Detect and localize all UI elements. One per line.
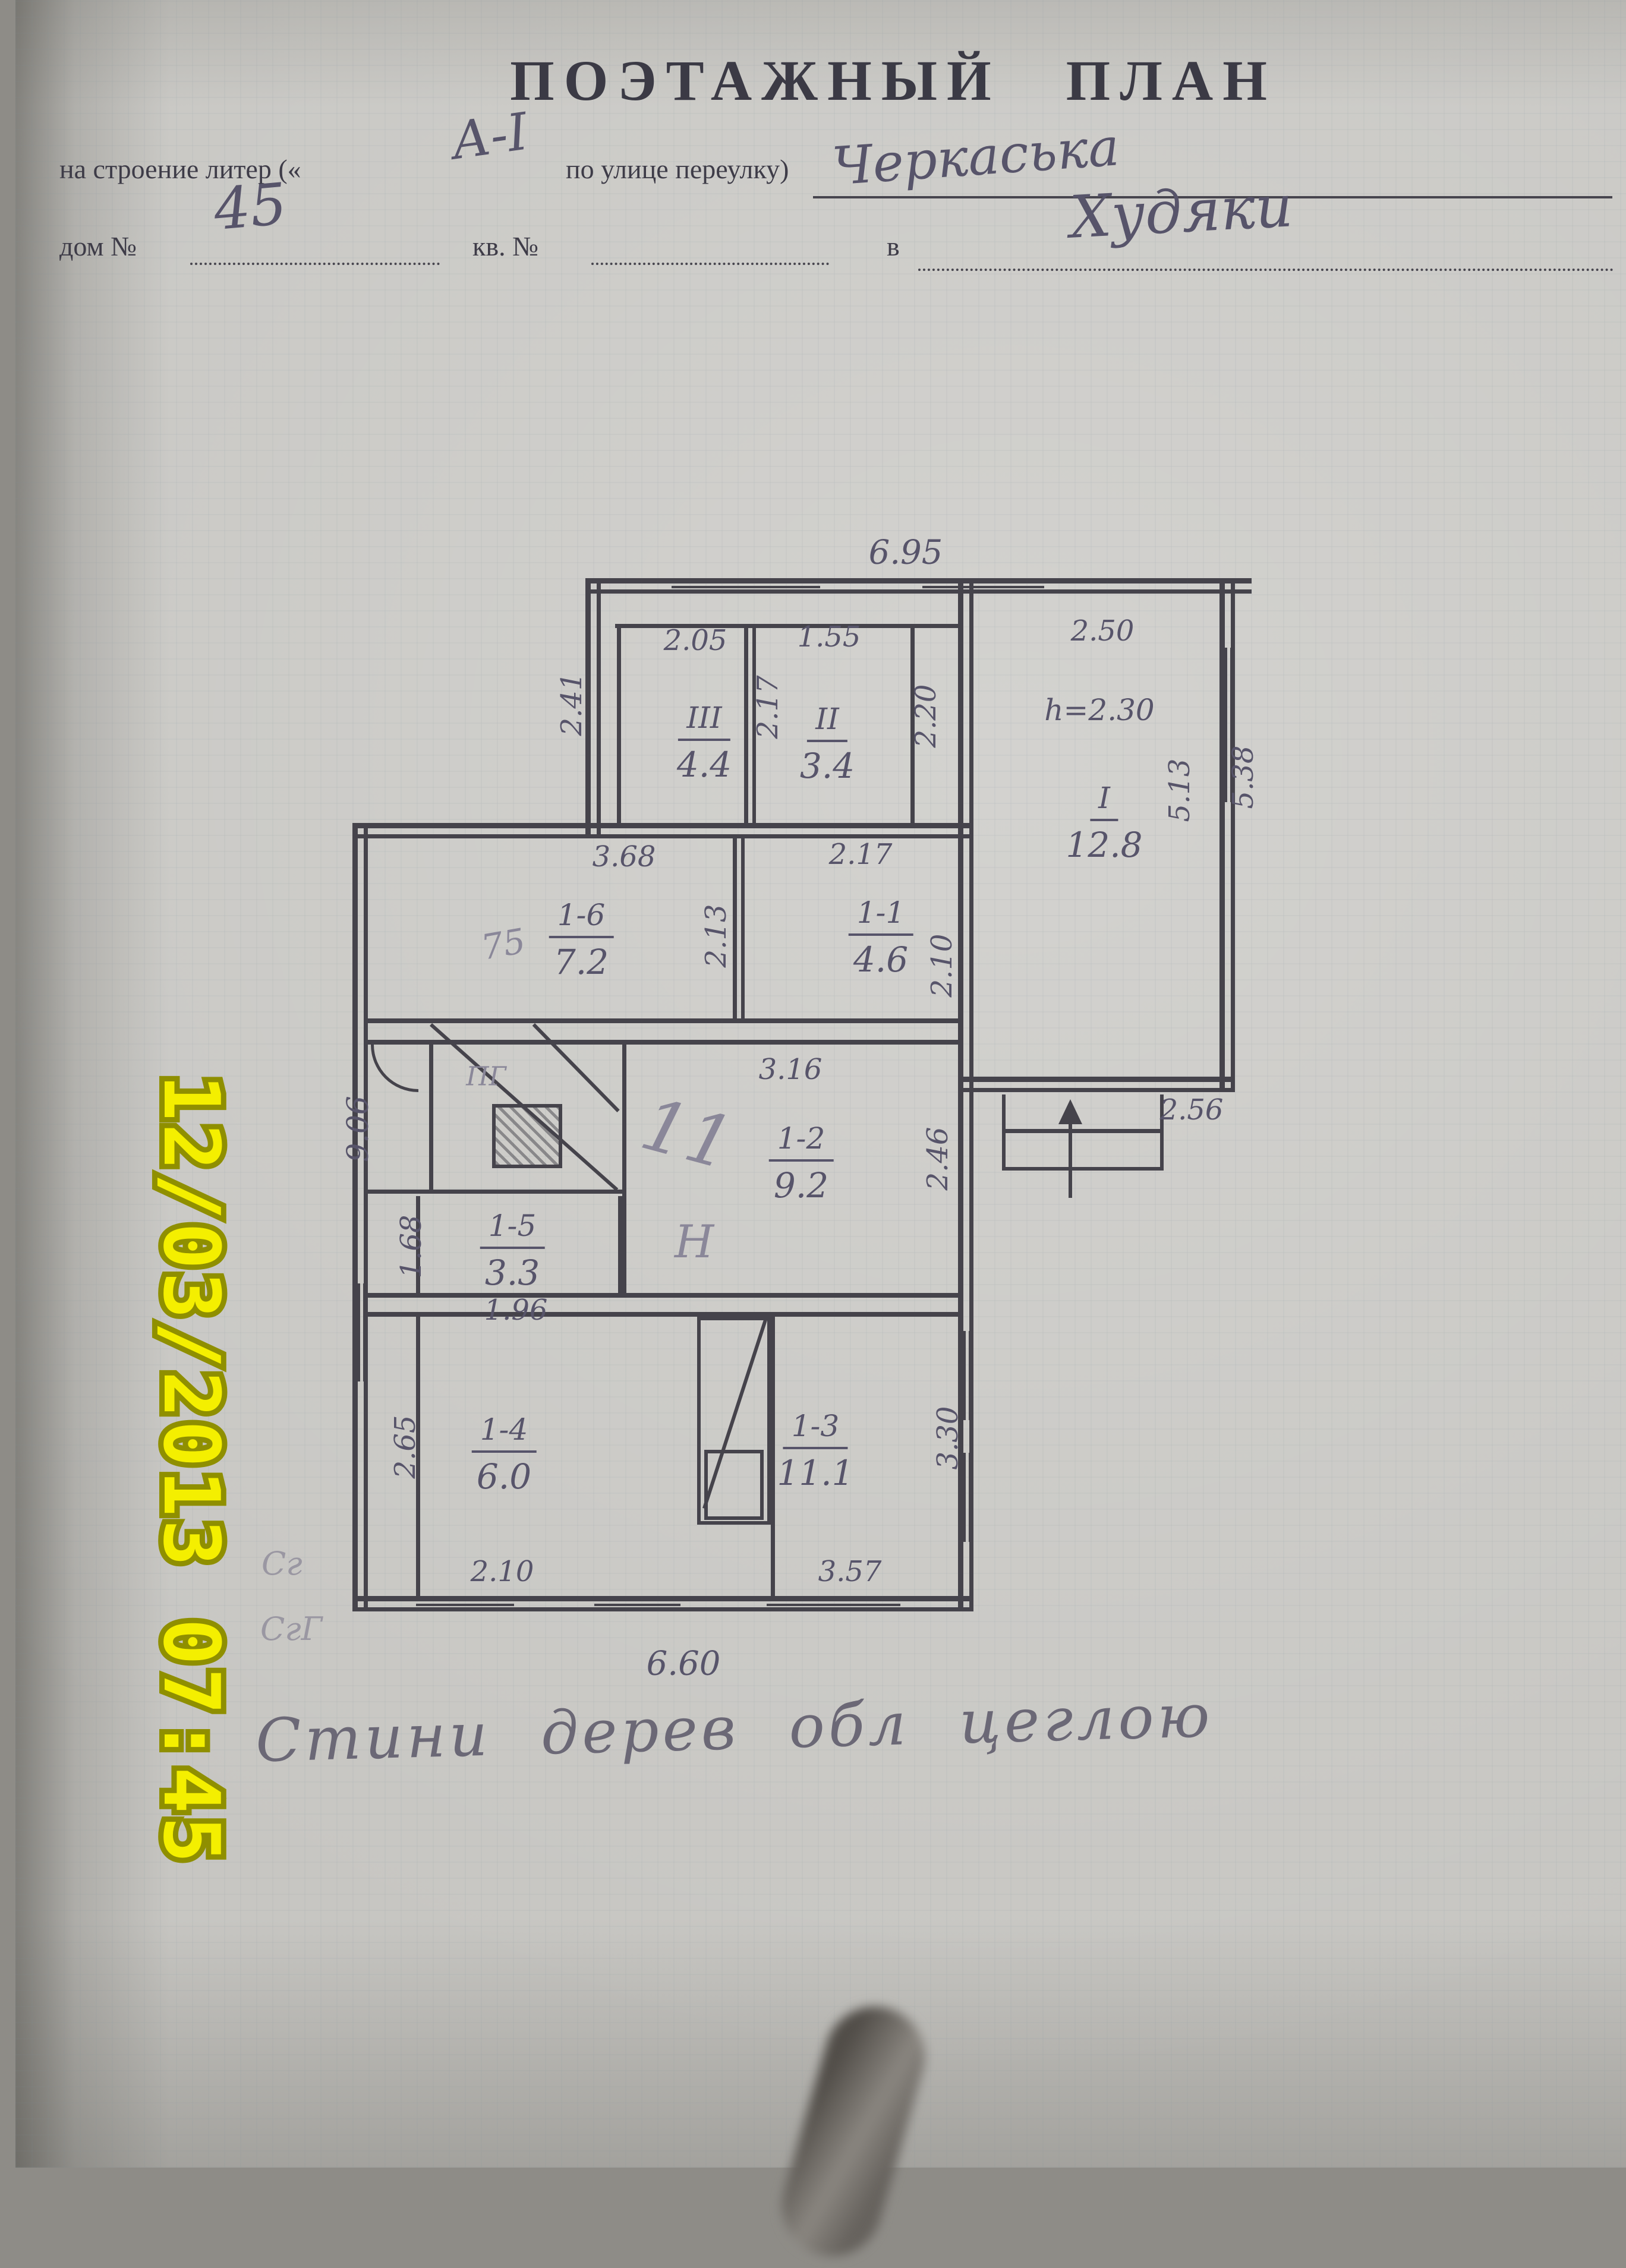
room-number: 1-6 [549, 898, 614, 938]
room-label-1-4: 1-4 6.0 [472, 1412, 537, 1497]
wall-r13-left [771, 1317, 775, 1596]
dim-porch: 2.56 [1160, 1093, 1224, 1127]
room-number: 1-4 [472, 1412, 537, 1453]
form-line2-rule2 [591, 263, 829, 265]
room-label-1-1: 1-1 4.6 [849, 895, 913, 980]
wall-main-top [352, 823, 973, 838]
form-line2-kv: кв. № [472, 231, 538, 262]
room-area: 6.0 [472, 1456, 537, 1497]
stove-annotation: ПГ [466, 1062, 506, 1092]
room-area: 7.2 [549, 942, 614, 982]
dim-r13-side: 3.30 [931, 1406, 965, 1470]
dim-r11-width: 2.17 [829, 838, 893, 871]
dim-room3-side: 2.17 [751, 676, 784, 739]
dim-r15-width: 1.96 [484, 1294, 548, 1327]
form-line2-v: в [887, 231, 900, 262]
room-number: I [1090, 781, 1118, 821]
form-line2-rule3 [918, 269, 1614, 271]
dim-overall-top: 6.95 [869, 534, 943, 572]
dim-r16-width: 3.68 [593, 840, 656, 873]
room-label-1-2: 1-2 9.2 [769, 1121, 834, 1206]
wall-mid-horizontal [368, 1018, 962, 1045]
camera-timestamp: 12/03/2013 07:45 12/03/2013 07:45 [146, 1074, 237, 1866]
village-handwritten: Худяки [1068, 172, 1294, 251]
window-top-1 [672, 578, 820, 594]
dim-room2-width: 1.55 [798, 620, 861, 654]
room-number: 1-2 [769, 1121, 834, 1162]
note-room-height: h=2.30 [1044, 693, 1154, 727]
room-label-1-5: 1-5 3.3 [480, 1209, 545, 1293]
room-number: 1-5 [480, 1209, 545, 1249]
dim-room3-width: 2.05 [664, 624, 727, 657]
dim-r12-side: 2.46 [921, 1127, 954, 1191]
window-top-2 [922, 578, 1044, 594]
room-number: III [678, 701, 730, 741]
dim-r14-side: 2.65 [389, 1415, 422, 1479]
dim-overall-left: 9.06 [341, 1096, 375, 1162]
room-area: 12.8 [1066, 825, 1142, 865]
dim-overall-bottom: 6.60 [647, 1645, 721, 1683]
camera-timestamp-text: 12/03/2013 07:45 [146, 1074, 237, 1866]
wall-r16-r11-partition [733, 838, 745, 1018]
room-number: II [807, 702, 847, 742]
dim-r15-side: 1.68 [395, 1215, 428, 1279]
litera-handwritten: А-I [448, 102, 532, 172]
room-label-III: III 4.4 [677, 701, 732, 785]
room-label-1-6: 1-6 7.2 [549, 898, 614, 982]
handwritten-n: Н [675, 1215, 714, 1268]
room-number: 1-3 [783, 1409, 848, 1449]
dim-r12-width: 3.16 [759, 1053, 823, 1086]
form-line2-rule1 [190, 263, 440, 265]
wall-r15-right [618, 1196, 622, 1297]
wall-r12-left [622, 1045, 626, 1297]
stove-symbol [492, 1104, 562, 1168]
wall-stove-bottom [368, 1190, 622, 1194]
closet-box [704, 1450, 764, 1520]
room-label-II: II 3.4 [800, 702, 855, 786]
room-area: 4.4 [677, 745, 732, 785]
entrance-arrow-head [1058, 1099, 1082, 1124]
room-label-1-3: 1-3 11.1 [777, 1409, 853, 1493]
window-bottom-3 [767, 1596, 900, 1611]
dim-r14-width: 2.10 [471, 1555, 534, 1588]
wall-room3-left [617, 624, 621, 827]
wall-lower-horizontal [368, 1293, 962, 1317]
room-area: 4.6 [849, 939, 913, 980]
room-area: 9.2 [769, 1165, 834, 1206]
page-title: ПОЭТАЖНЫЙ ПЛАН [160, 48, 1626, 113]
dim-r11-side: 2.10 [925, 934, 959, 998]
dim-room1-width: 2.50 [1071, 614, 1135, 648]
porch-step-line [1002, 1129, 1164, 1133]
dim-room1-side-inner: 5.13 [1163, 759, 1196, 822]
window-bottom-1 [416, 1596, 514, 1611]
form-line1-suffix: по улице переулку) [566, 153, 789, 185]
room-number: 1-1 [849, 895, 913, 936]
window-bottom-2 [594, 1596, 680, 1611]
mark-sg-2: СгГ [260, 1610, 322, 1648]
room-area: 3.3 [480, 1253, 545, 1293]
dim-room1-side-outer: 5.38 [1227, 746, 1260, 809]
dim-room3-height: 2.41 [555, 673, 588, 736]
wall-room1-bottom [958, 1077, 1235, 1092]
room-label-I: I 12.8 [1066, 781, 1142, 865]
room-area: 11.1 [777, 1453, 853, 1493]
dim-room2-side: 2.20 [909, 684, 943, 748]
window-left-1 [352, 1283, 368, 1381]
mark-sg-1: Сг [261, 1545, 302, 1582]
wall-main-left [352, 823, 368, 1611]
scribble-75: 75 [478, 920, 528, 968]
entrance-arrow-line [1069, 1122, 1072, 1198]
dim-r13-width: 3.57 [818, 1555, 882, 1588]
wall-stove-left [429, 1045, 433, 1193]
room-area: 3.4 [800, 746, 855, 786]
form-line2-dom: дом № [59, 231, 137, 262]
house-number-handwritten: 45 [211, 171, 289, 243]
dim-r16-side: 2.13 [699, 904, 733, 968]
